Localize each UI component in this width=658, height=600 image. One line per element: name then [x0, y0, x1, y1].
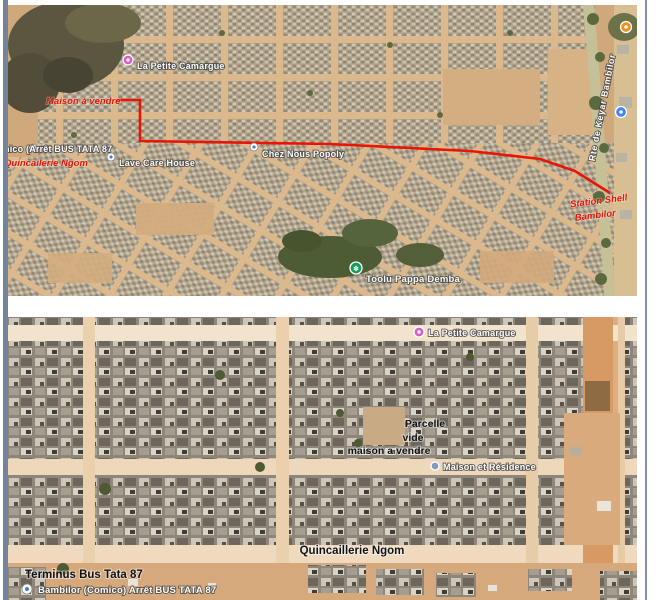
pin-center-dot [624, 25, 628, 29]
pin-center-dot [109, 155, 112, 158]
right-frame-line [645, 0, 647, 600]
maison-residence-pin-icon [431, 462, 439, 470]
pin-center-dot [417, 330, 420, 333]
bottom-map-terrain [8, 317, 637, 600]
label-maison-et-residence: Maison et Résidence [443, 462, 536, 472]
label-vide: vide [402, 432, 423, 444]
pin-center-dot [252, 145, 255, 148]
label-arret-bus-tata: nico (Arrêt BUS TATA 87 [8, 144, 112, 154]
top-map-image[interactable]: ✽ La Petite Camargue Maison à vendre nic… [8, 5, 637, 296]
label-la-petite-camargue: La Petite Camargue [137, 61, 225, 71]
bottom-map-svg: La Petite Camargue Parcelle vide maison … [8, 317, 637, 600]
label-parcelle: Parcelle [405, 418, 445, 430]
label-lave-care-house: Lave Care House [119, 158, 195, 168]
pin-center-dot [25, 587, 29, 591]
label-maison-a-vendre: maison a vendre [348, 445, 431, 457]
top-map-svg: ✽ La Petite Camargue Maison à vendre nic… [8, 5, 637, 296]
label-terminus-bus-tata: Terminus Bus Tata 87 [25, 569, 143, 581]
label-la-petite-camargue: La Petite Camargue [428, 328, 516, 338]
bottom-map-image[interactable]: La Petite Camargue Parcelle vide maison … [8, 317, 637, 600]
pin-center-dot [126, 58, 129, 61]
pin-center-dot [619, 110, 623, 114]
label-maison-a-vendre: Maison à vendre [46, 96, 121, 107]
label-quincaillerie-ngom: Quincaillerie Ngom [300, 545, 405, 557]
tree-pin-glyph: ✽ [353, 265, 359, 273]
document-page: ✽ La Petite Camargue Maison à vendre nic… [0, 0, 658, 600]
label-bambilor-comico: Bambilor (Comico) Arrêt BUS TATA 87 [38, 585, 216, 596]
label-chez-nous-popoly: Chez Nous Popoly [262, 149, 344, 159]
label-toolu-pappa-demba: Toolu Pappa Demba [366, 274, 461, 285]
label-quincailerie-ngom: Quincailerie Ngom [8, 158, 88, 169]
